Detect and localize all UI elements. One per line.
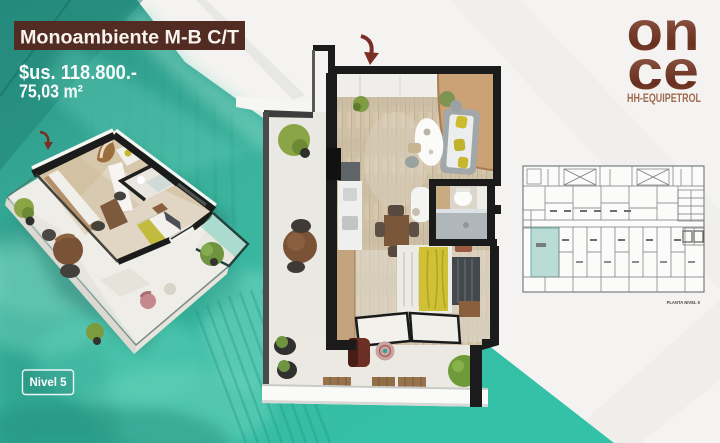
svg-text:75,03 m²: 75,03 m²	[19, 82, 83, 102]
svg-text:Nivel 5: Nivel 5	[29, 377, 67, 389]
svg-text:Monoambiente M-B C/T: Monoambiente M-B C/T	[20, 27, 239, 49]
svg-text:HH-EQUIPETROL: HH-EQUIPETROL	[627, 91, 701, 105]
svg-text:PLANTA NIVEL 5: PLANTA NIVEL 5	[667, 300, 701, 305]
